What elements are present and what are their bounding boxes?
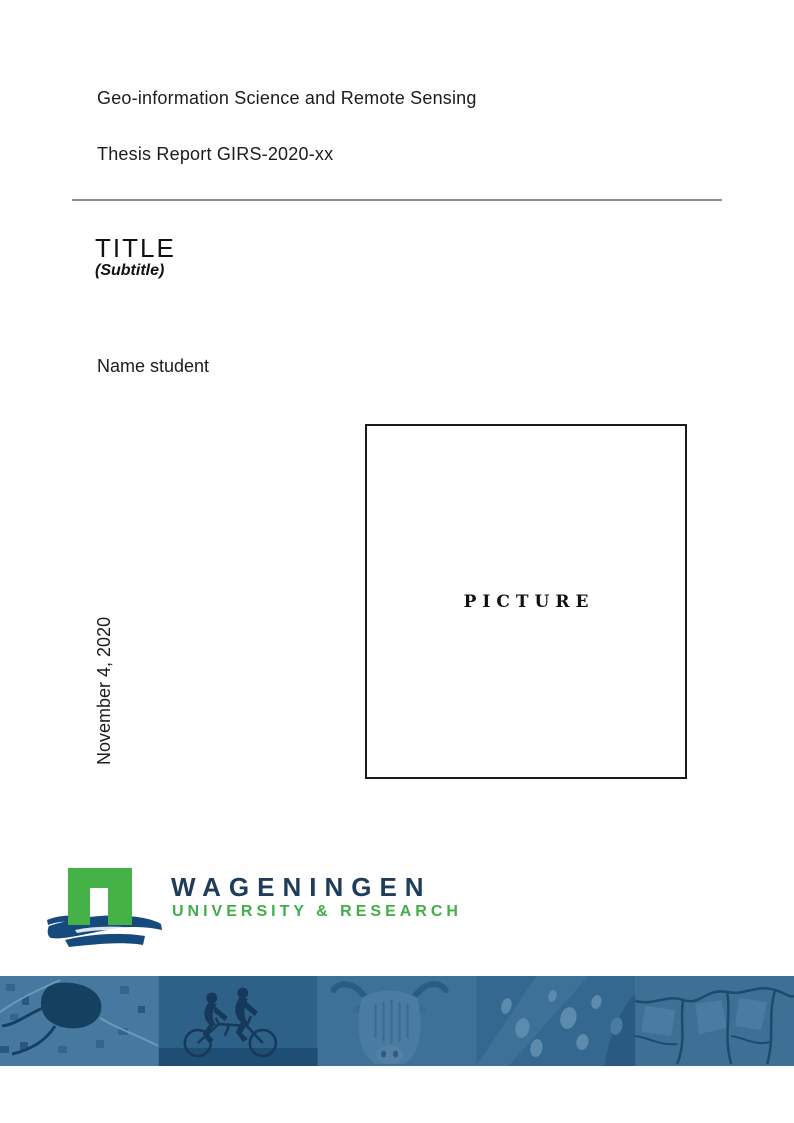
picture-placeholder-label: PICTURE <box>458 592 595 612</box>
report-id-line: Thesis Report GIRS-2020-xx <box>97 144 333 165</box>
divider-rule <box>72 199 722 201</box>
thesis-title: TITLE <box>95 233 176 264</box>
picture-placeholder-box: PICTURE <box>365 424 687 779</box>
author-name: Name student <box>97 356 209 377</box>
wur-logo-icon <box>45 860 165 952</box>
banner-image-aerial-farmland <box>0 976 159 1066</box>
banner-image-cracked-earth <box>635 976 794 1066</box>
wur-logo-tagline: UNIVERSITY & RESEARCH <box>172 903 462 921</box>
thesis-cover-page: Geo-information Science and Remote Sensi… <box>0 0 794 1123</box>
photo-banner <box>0 976 794 1066</box>
wur-logo-swoosh <box>47 915 162 947</box>
banner-image-tandem-cyclists <box>159 976 318 1066</box>
department-line: Geo-information Science and Remote Sensi… <box>97 88 477 109</box>
banner-image-highland-cow <box>318 976 477 1066</box>
wur-logo-name: WAGENINGEN <box>171 872 432 903</box>
date-vertical: November 4, 2020 <box>94 617 115 765</box>
banner-image-butterfly-wing <box>476 976 635 1066</box>
thesis-subtitle: (Subtitle) <box>95 262 164 280</box>
